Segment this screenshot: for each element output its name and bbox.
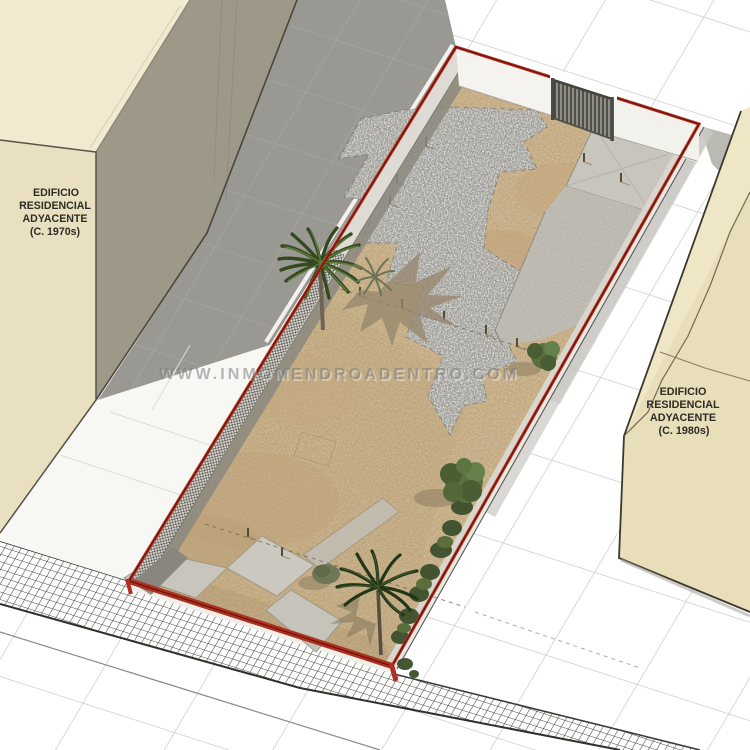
svg-text:WWW.INMOMENDROADENTRO.COM: WWW.INMOMENDROADENTRO.COM — [159, 366, 519, 383]
svg-text:RESIDENCIAL: RESIDENCIAL — [646, 399, 720, 411]
svg-text:(C. 1980s): (C. 1980s) — [658, 425, 709, 437]
svg-text:EDIFICIO: EDIFICIO — [660, 386, 707, 398]
svg-text:EDIFICIO: EDIFICIO — [33, 187, 79, 199]
svg-text:ADYACENTE: ADYACENTE — [23, 213, 88, 225]
svg-text:ADYACENTE: ADYACENTE — [650, 412, 716, 424]
svg-text:(C. 1970s): (C. 1970s) — [30, 226, 80, 238]
svg-text:RESIDENCIAL: RESIDENCIAL — [19, 200, 91, 212]
